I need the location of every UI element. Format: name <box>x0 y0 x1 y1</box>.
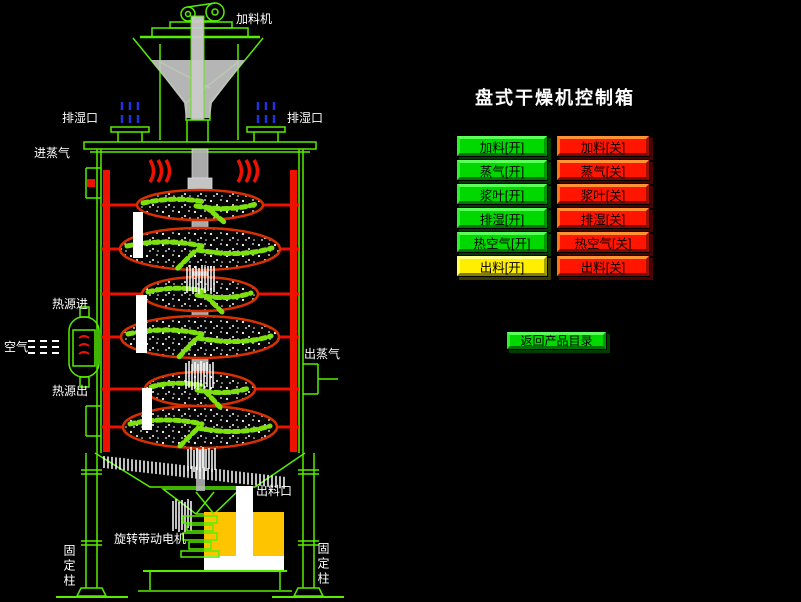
btn-steam-on[interactable]: 蒸气[开] <box>457 160 547 180</box>
label-discharge: 出料口 <box>256 484 292 498</box>
page-title: 盘式干燥机控制箱 <box>452 84 658 110</box>
air-flow-icon <box>28 341 60 353</box>
label-heat-in: 热源进 <box>52 297 88 311</box>
btn-hotair-off[interactable]: 热空气[关] <box>557 232 649 252</box>
btn-dehumid-off[interactable]: 排湿[关] <box>557 208 649 228</box>
btn-feed-off[interactable]: 加料[关] <box>557 136 649 156</box>
label-column-left: 固定柱 <box>62 544 76 589</box>
btn-paddle-on[interactable]: 浆叶[开] <box>457 184 547 204</box>
material-curtain <box>133 212 143 258</box>
btn-discharge-on[interactable]: 出料[开] <box>457 256 547 276</box>
btn-paddle-off[interactable]: 浆叶[关] <box>557 184 649 204</box>
label-steam-out: 出蒸气 <box>304 347 340 361</box>
material-curtain <box>136 295 147 353</box>
label-vent-left: 排湿口 <box>62 111 98 125</box>
btn-hotair-on[interactable]: 热空气[开] <box>457 232 547 252</box>
label-air: 空气 <box>4 340 28 354</box>
btn-dehumid-on[interactable]: 排湿[开] <box>457 208 547 228</box>
label-drive-motor: 旋转带动电机 <box>114 532 186 546</box>
back-to-catalog-button[interactable]: 返回产品目录 <box>507 332 606 349</box>
material-curtain <box>142 388 152 430</box>
btn-steam-off[interactable]: 蒸气[关] <box>557 160 649 180</box>
heater-coil-icon <box>79 336 89 354</box>
feed-screw <box>191 16 204 120</box>
btn-discharge-off[interactable]: 出料[关] <box>557 256 649 276</box>
label-heat-out: 热源出 <box>52 384 88 398</box>
label-column-right: 固定柱 <box>316 542 330 587</box>
label-steam-in: 进蒸气 <box>34 146 70 160</box>
control-panel: 加料[开] 加料[关] 蒸气[开] 蒸气[关] 浆叶[开] 浆叶[关] 排湿[开… <box>457 136 649 276</box>
hmi-screen: 加料机 排湿口 排湿口 进蒸气 热源进 空气 热源出 出蒸气 出料口 旋转带动电… <box>0 0 801 602</box>
label-vent-right: 排湿口 <box>287 111 323 125</box>
btn-feed-on[interactable]: 加料[开] <box>457 136 547 156</box>
label-feeder: 加料机 <box>236 12 272 26</box>
motor-base-band <box>204 556 284 570</box>
